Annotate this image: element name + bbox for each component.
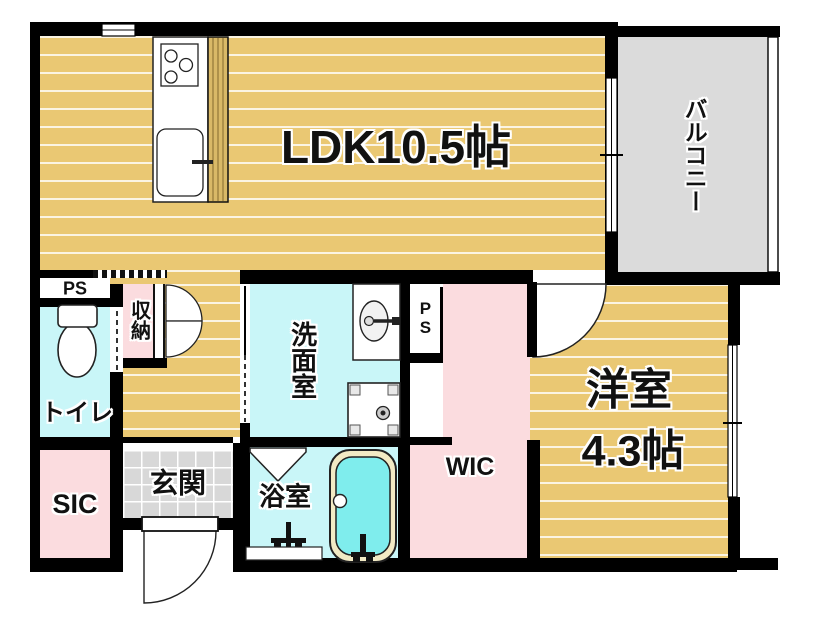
wall: [737, 558, 778, 570]
wall: [110, 284, 123, 300]
wall: [233, 443, 250, 572]
wall: [403, 353, 443, 363]
wall: [618, 26, 780, 37]
wall: [728, 497, 740, 558]
wic-floor-lower: [410, 445, 443, 558]
wall: [527, 284, 540, 357]
wall: [30, 270, 93, 278]
ldk-label: LDK10.5帖: [281, 123, 511, 171]
balcony-railing: [768, 37, 778, 272]
western-room-floor: [530, 284, 728, 558]
closet-door-panel: [153, 284, 165, 358]
wic-label: WIC: [446, 454, 495, 480]
entrance-door-icon: [142, 517, 218, 603]
wall: [398, 437, 410, 558]
wall: [240, 270, 533, 284]
balcony-label: バルコニー: [682, 98, 706, 213]
wall: [728, 285, 740, 345]
bathroom-label: 浴室: [259, 483, 311, 510]
hatched-wall: [93, 270, 167, 278]
pipe-space-left-label: PS: [63, 280, 87, 299]
wall: [123, 437, 233, 443]
toilet-label: トイレ: [41, 400, 113, 425]
wall: [605, 272, 780, 285]
western-room-label-line1: 洋室: [586, 368, 672, 413]
entrance-label: 玄関: [150, 468, 206, 497]
wic-floor: [443, 284, 530, 558]
wall: [440, 287, 443, 353]
pipe-space-center-label: PS: [416, 299, 434, 337]
floorplan: LDK10.5帖 バルコニー 洋室 4.3帖 WIC 洗面室 浴室 トイレ 収納…: [0, 0, 817, 631]
washroom-sliding-door: [240, 285, 250, 423]
wall: [30, 558, 123, 572]
washroom-label: 洗面室: [288, 321, 315, 399]
washroom-floor: [250, 284, 400, 437]
wall: [605, 26, 618, 285]
wall: [215, 518, 233, 530]
entrance-step: [123, 443, 233, 450]
western-room-label-line2: 4.3帖: [582, 429, 685, 474]
wall: [30, 437, 123, 450]
sic-label: SIC: [52, 490, 97, 518]
wall: [30, 22, 40, 572]
wall: [527, 440, 540, 558]
western-room-door-opening: [533, 270, 606, 284]
wall: [123, 358, 167, 368]
storage-label: 収納: [128, 300, 149, 340]
wall: [240, 437, 410, 447]
wall: [240, 558, 737, 572]
toilet-sliding-door: [111, 300, 123, 372]
wall: [30, 22, 618, 36]
wall: [410, 437, 452, 445]
wall: [123, 518, 145, 530]
